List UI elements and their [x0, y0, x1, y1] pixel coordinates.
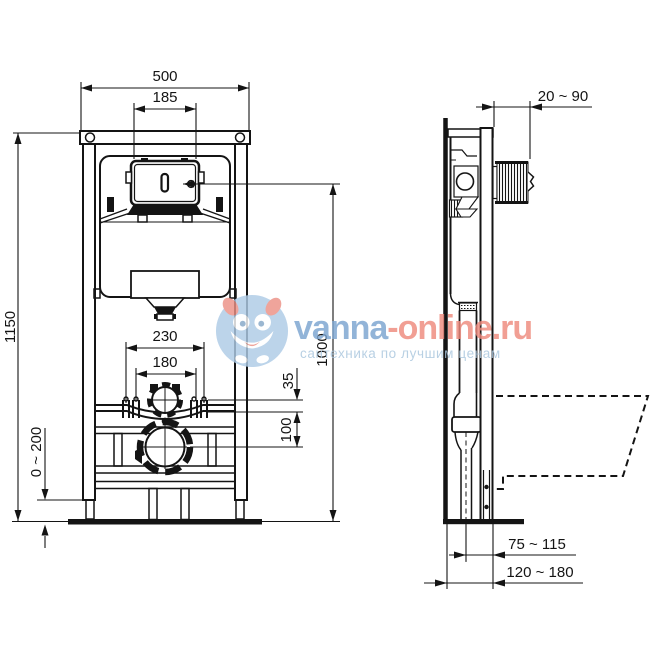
installation-frame-drawing: 500 185 1150 0 ~ 200 230 180 1000 35 100…	[0, 0, 650, 650]
dim-label-1000: 1000	[314, 333, 331, 366]
dim-label-180: 180	[152, 354, 177, 371]
dim-label-1150: 1150	[2, 311, 19, 343]
technical-drawing-page: 500 185 1150 0 ~ 200 230 180 1000 35 100…	[0, 0, 650, 650]
side-cistern	[450, 137, 479, 305]
dim-label-75-115: 75 ~ 115	[508, 536, 566, 553]
dim-label-20-90: 20 ~ 90	[538, 88, 588, 105]
dim-label-0-200: 0 ~ 200	[28, 427, 45, 477]
flush-plate	[126, 158, 204, 222]
frame-top-bar	[80, 131, 250, 144]
fill-valve	[457, 173, 474, 190]
dim-label-500: 500	[152, 68, 177, 85]
service-window	[131, 271, 199, 320]
dim-label-230: 230	[152, 328, 177, 345]
actuator-sleeve	[493, 162, 534, 203]
dim-label-185: 185	[152, 89, 177, 106]
side-base-plate	[443, 519, 524, 524]
dim-label-35: 35	[280, 373, 297, 390]
dim-label-100: 100	[278, 417, 295, 442]
side-view	[443, 118, 648, 562]
toilet-bowl-outline	[496, 396, 648, 489]
drain-outlet	[135, 422, 190, 472]
dim-label-120-180: 120 ~ 180	[506, 564, 573, 581]
base-plate	[68, 519, 262, 525]
side-frame-post	[481, 128, 493, 520]
